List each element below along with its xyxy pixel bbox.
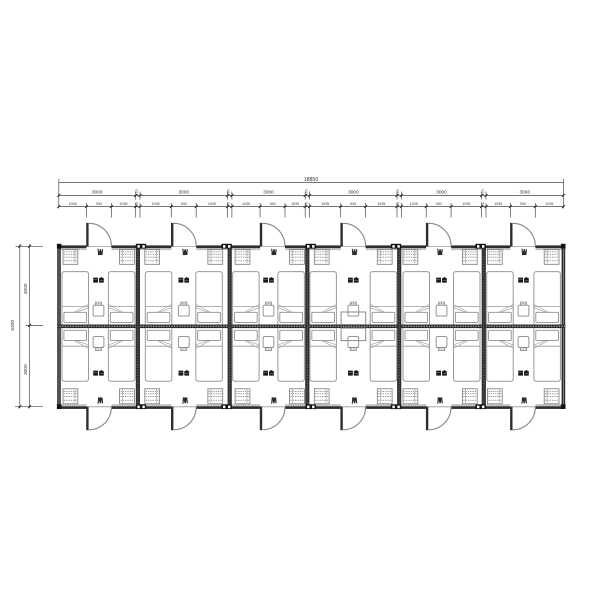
svg-text:3000: 3000	[348, 189, 359, 195]
svg-text:3000: 3000	[436, 189, 447, 195]
svg-text:170: 170	[481, 189, 485, 195]
svg-text:3000: 3000	[178, 189, 189, 195]
svg-text:1035: 1035	[152, 202, 160, 206]
svg-text:170: 170	[396, 202, 400, 208]
svg-text:1035: 1035	[208, 202, 216, 206]
svg-text:3000: 3000	[519, 189, 530, 195]
svg-text:3000: 3000	[23, 364, 29, 375]
svg-text:170: 170	[481, 202, 485, 208]
svg-text:930: 930	[520, 202, 526, 206]
svg-text:170: 170	[396, 189, 400, 195]
svg-text:1035: 1035	[494, 202, 502, 206]
svg-text:1035: 1035	[242, 202, 250, 206]
svg-text:930: 930	[181, 202, 187, 206]
svg-text:18850: 18850	[304, 177, 319, 183]
svg-text:170: 170	[135, 189, 139, 195]
svg-text:170: 170	[227, 202, 231, 208]
svg-text:930: 930	[350, 202, 356, 206]
svg-text:1035: 1035	[321, 202, 329, 206]
svg-text:3000: 3000	[92, 189, 103, 195]
svg-text:930: 930	[270, 202, 276, 206]
svg-text:930: 930	[436, 202, 442, 206]
svg-text:1035: 1035	[462, 202, 470, 206]
svg-text:6300: 6300	[10, 320, 16, 331]
svg-text:3000: 3000	[263, 189, 274, 195]
svg-text:170: 170	[227, 189, 231, 195]
svg-text:1035: 1035	[291, 202, 299, 206]
svg-text:170: 170	[304, 202, 308, 208]
svg-text:1035: 1035	[69, 202, 77, 206]
svg-text:1035: 1035	[377, 202, 385, 206]
svg-text:1035: 1035	[545, 202, 553, 206]
svg-text:170: 170	[135, 202, 139, 208]
svg-text:170: 170	[304, 189, 308, 195]
svg-text:1035: 1035	[410, 202, 418, 206]
svg-text:3000: 3000	[23, 283, 29, 294]
svg-text:1035: 1035	[120, 202, 128, 206]
svg-text:930: 930	[96, 202, 102, 206]
